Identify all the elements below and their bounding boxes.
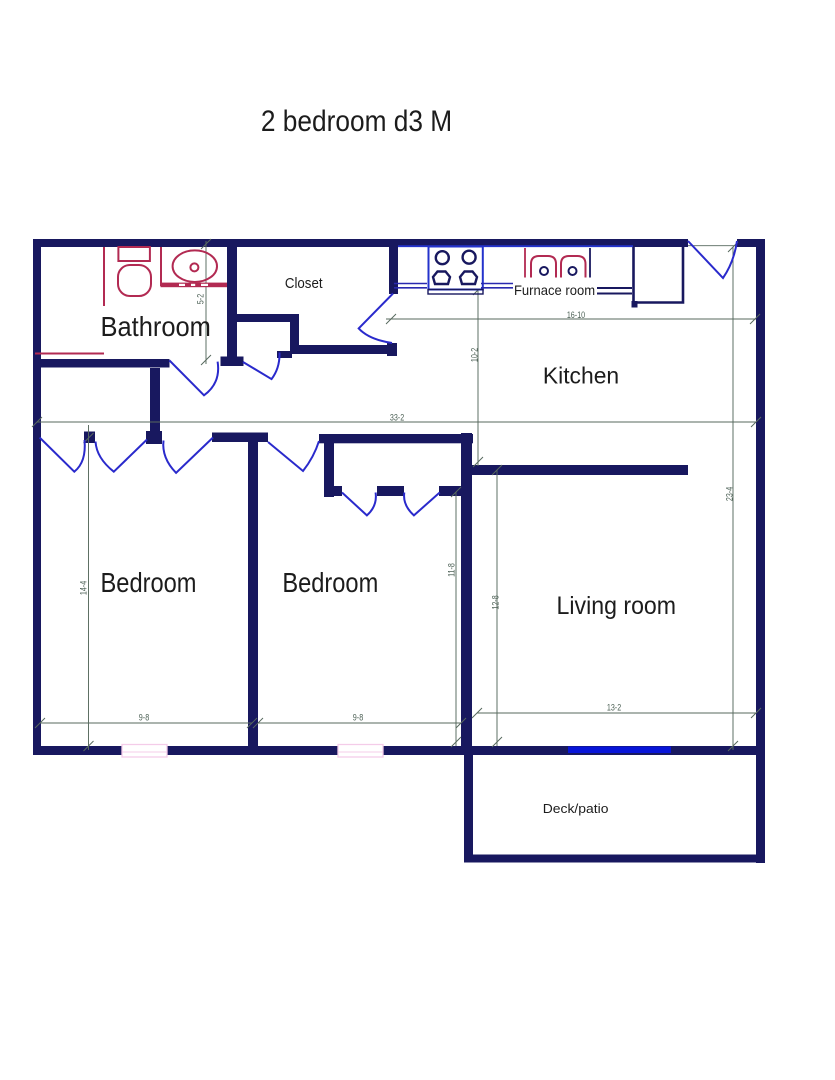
svg-text:16-10: 16-10 [567,310,586,320]
svg-text:Closet: Closet [285,275,323,292]
svg-text:13-2: 13-2 [607,703,622,713]
svg-text:12-8: 12-8 [491,595,501,610]
svg-text:5-2: 5-2 [196,293,206,304]
svg-text:Living room: Living room [557,592,677,620]
svg-text:Bedroom: Bedroom [101,568,197,598]
svg-text:11-8: 11-8 [447,563,457,577]
svg-text:33-2: 33-2 [390,413,405,423]
svg-text:Bedroom: Bedroom [282,568,378,598]
svg-text:14-4: 14-4 [79,580,89,595]
svg-text:10-2: 10-2 [470,347,480,362]
svg-text:Bathroom: Bathroom [101,311,211,342]
svg-text:23-4: 23-4 [725,486,735,501]
svg-text:9-8: 9-8 [353,713,364,723]
svg-text:9-8: 9-8 [139,713,150,723]
svg-text:2 bedroom d3 M: 2 bedroom d3 M [261,103,452,137]
svg-text:Deck/patio: Deck/patio [543,801,609,815]
svg-text:Furnace room: Furnace room [514,283,595,298]
svg-text:Kitchen: Kitchen [543,362,619,388]
